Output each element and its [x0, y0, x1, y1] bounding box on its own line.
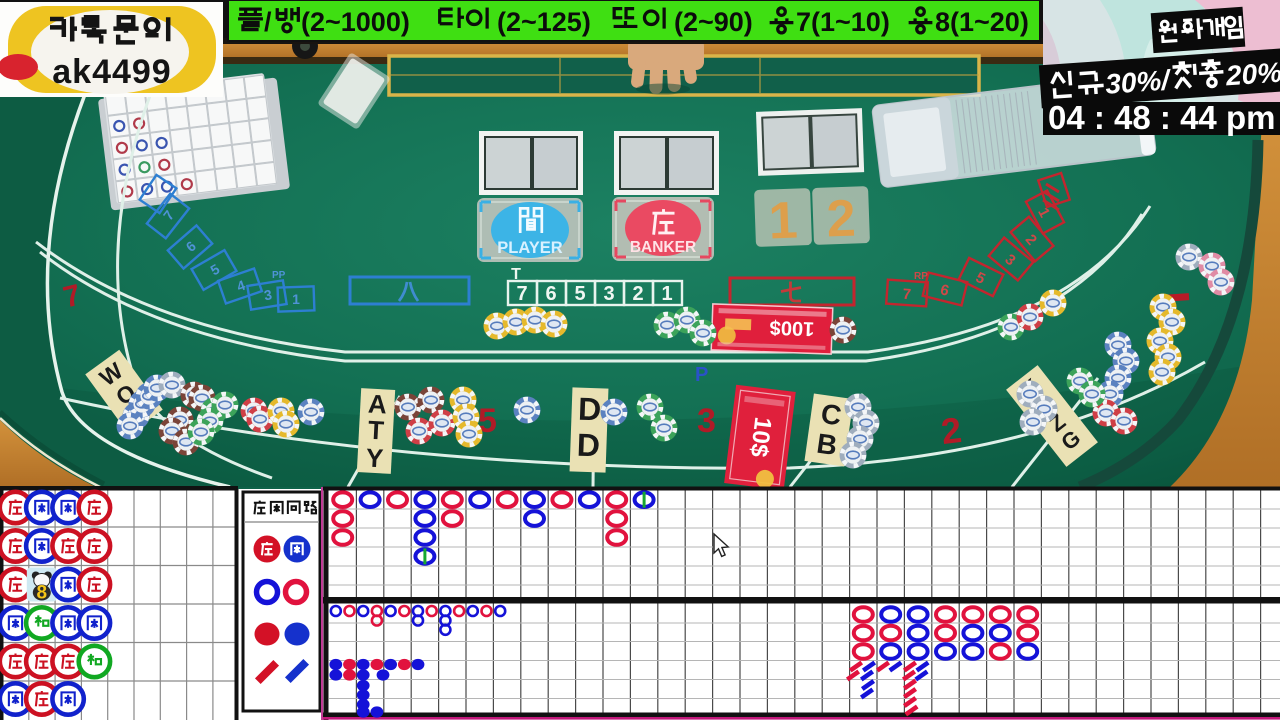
svg-text:(2~125): (2~125) [497, 7, 591, 37]
svg-text:BANKER: BANKER [630, 239, 696, 256]
svg-text:(2~1000): (2~1000) [301, 7, 410, 37]
svg-text:8(1~20): 8(1~20) [935, 7, 1029, 37]
svg-text:2: 2 [826, 190, 857, 249]
svg-text:P: P [695, 364, 708, 386]
svg-text:7: 7 [516, 283, 527, 305]
svg-text:C: C [819, 398, 843, 432]
svg-text:T: T [367, 415, 385, 446]
svg-text:2: 2 [632, 283, 643, 305]
svg-text:6: 6 [545, 283, 556, 305]
svg-text:10$: 10$ [745, 416, 777, 460]
svg-text:D: D [578, 391, 602, 428]
svg-text:3: 3 [697, 402, 716, 440]
svg-text:1: 1 [661, 283, 672, 305]
svg-text:D: D [576, 427, 600, 464]
svg-text:Y: Y [365, 443, 384, 474]
svg-text:1: 1 [292, 291, 300, 307]
svg-text:7(1~10): 7(1~10) [796, 7, 890, 37]
svg-text:B: B [815, 428, 839, 462]
svg-text:5: 5 [574, 283, 585, 305]
svg-text:PP: PP [272, 270, 286, 281]
svg-text:3: 3 [603, 283, 614, 305]
svg-text:8: 8 [37, 583, 48, 604]
svg-text:7: 7 [902, 286, 912, 304]
svg-text:ak4499: ak4499 [52, 53, 171, 91]
svg-text:1: 1 [768, 192, 799, 251]
svg-text:RP: RP [914, 271, 928, 282]
svg-text:100$: 100$ [769, 316, 814, 340]
svg-text:/: / [264, 7, 272, 37]
svg-text:PLAYER: PLAYER [497, 239, 562, 257]
svg-text:20%: 20% [1224, 57, 1280, 92]
svg-text:(2~90): (2~90) [674, 7, 753, 37]
svg-text:04 : 48 : 44 pm: 04 : 48 : 44 pm [1048, 99, 1275, 136]
svg-text:30%/: 30%/ [1104, 64, 1173, 100]
